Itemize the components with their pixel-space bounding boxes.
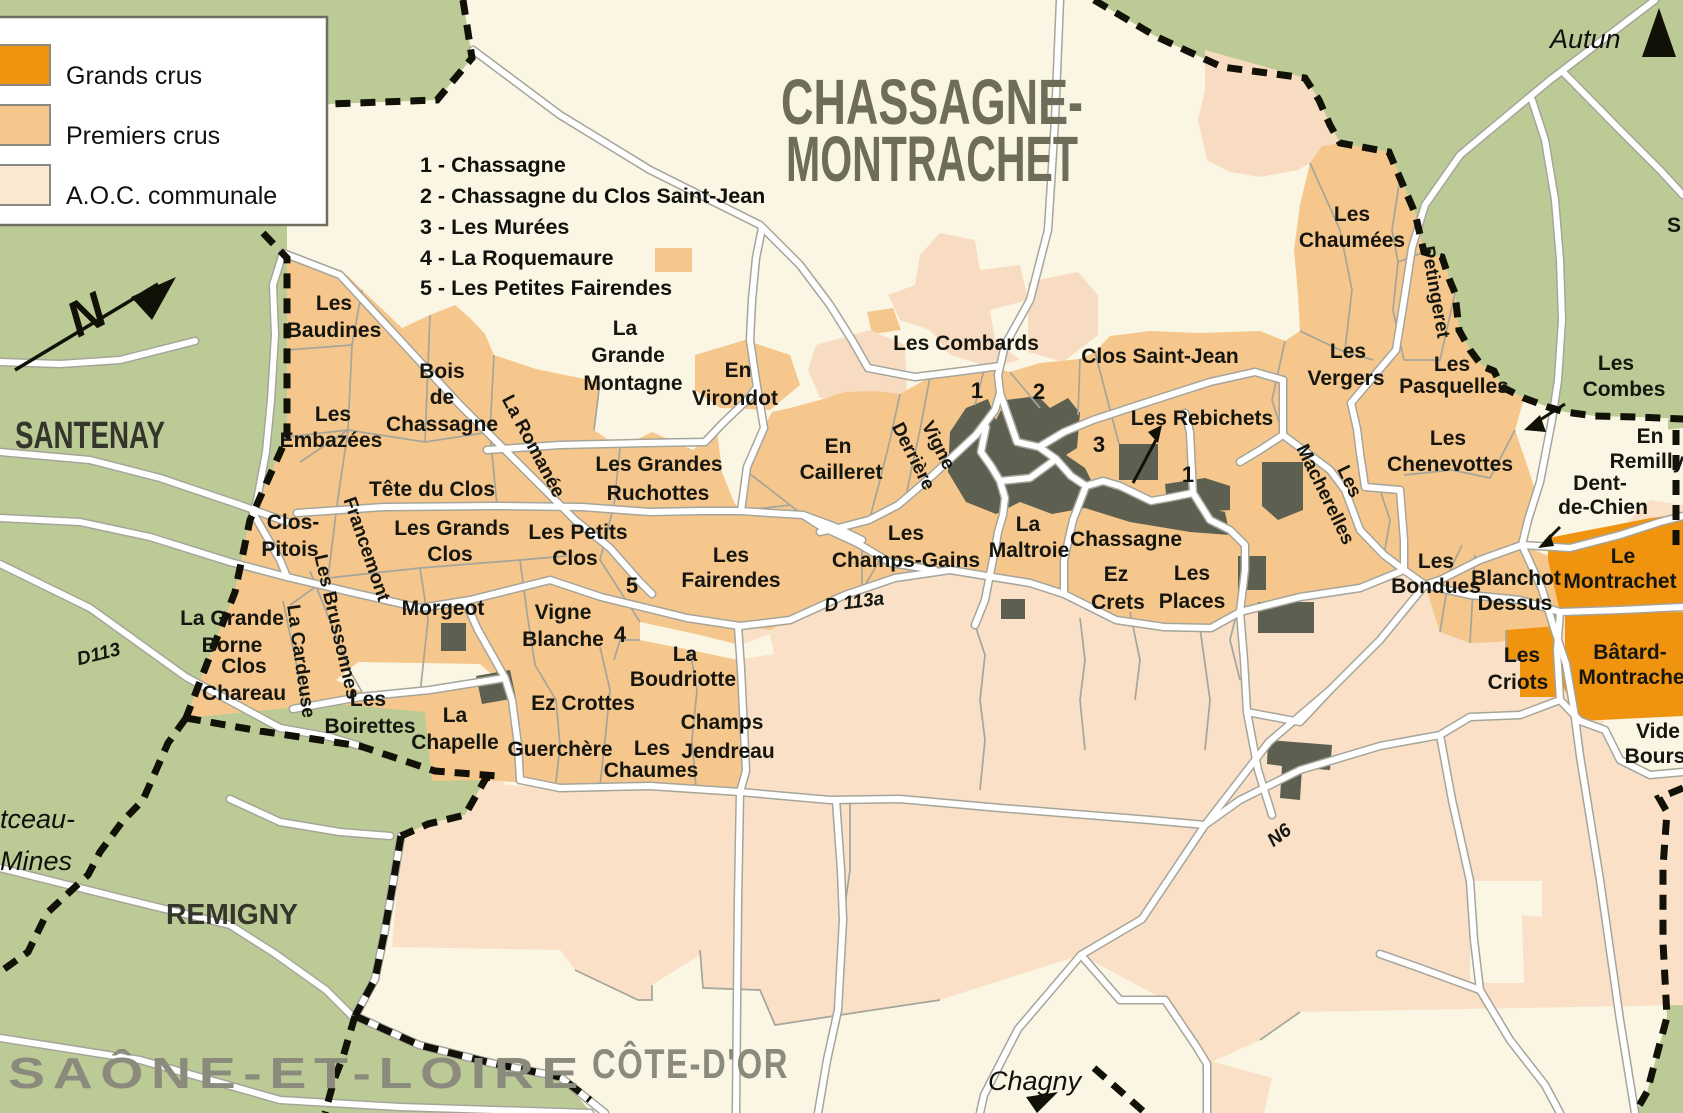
svg-text:Maltroie: Maltroie — [989, 539, 1070, 562]
svg-text:Fairendes: Fairendes — [681, 569, 780, 592]
svg-text:4: 4 — [614, 622, 627, 647]
svg-text:Vergers: Vergers — [1307, 367, 1384, 390]
svg-text:Borne: Borne — [202, 634, 263, 657]
svg-text:Embazées: Embazées — [280, 429, 383, 452]
svg-text:SANTENAY: SANTENAY — [15, 415, 165, 457]
svg-text:Premiers crus: Premiers crus — [66, 122, 220, 150]
svg-text:1: 1 — [1182, 462, 1194, 487]
svg-text:Les Petits: Les Petits — [528, 521, 627, 544]
svg-text:Clos Saint-Jean: Clos Saint-Jean — [1081, 345, 1239, 368]
svg-text:Autun: Autun — [1548, 24, 1621, 54]
svg-text:Champs: Champs — [681, 711, 764, 734]
svg-text:Les: Les — [316, 292, 352, 315]
svg-text:Chapelle: Chapelle — [411, 731, 499, 754]
svg-text:Chagny: Chagny — [988, 1066, 1083, 1096]
svg-text:Pasquelles: Pasquelles — [1399, 375, 1509, 398]
svg-text:Places: Places — [1159, 590, 1226, 613]
svg-text:Les: Les — [315, 403, 351, 426]
svg-text:Les: Les — [1174, 562, 1210, 585]
svg-text:Les Combards: Les Combards — [893, 332, 1039, 355]
svg-text:Grands crus: Grands crus — [66, 62, 202, 90]
svg-text:tceau-: tceau- — [0, 804, 75, 834]
svg-text:Chenevottes: Chenevottes — [1387, 453, 1513, 476]
svg-text:Les: Les — [1330, 340, 1366, 363]
svg-text:La: La — [673, 643, 698, 666]
svg-text:Le: Le — [1611, 545, 1636, 568]
svg-text:Chaumées: Chaumées — [1299, 229, 1405, 252]
svg-text:Les: Les — [1598, 352, 1634, 375]
svg-text:Les: Les — [888, 522, 924, 545]
svg-text:Crets: Crets — [1091, 591, 1145, 614]
svg-text:Criots: Criots — [1488, 671, 1549, 694]
svg-text:Les: Les — [350, 688, 386, 711]
svg-text:En: En — [825, 435, 852, 458]
svg-text:Les Grands: Les Grands — [394, 517, 510, 540]
svg-text:Les: Les — [713, 544, 749, 567]
svg-text:de: de — [430, 386, 455, 409]
svg-text:Les: Les — [1504, 644, 1540, 667]
svg-text:Les Grandes: Les Grandes — [595, 453, 722, 476]
svg-text:CÔTE-D'OR: CÔTE-D'OR — [592, 1039, 789, 1087]
svg-text:de-Chien: de-Chien — [1558, 496, 1648, 519]
svg-text:Boirettes: Boirettes — [324, 715, 415, 738]
svg-text:4 - La Roquemaure: 4 - La Roquemaure — [420, 246, 614, 270]
svg-text:Les: Les — [1430, 427, 1466, 450]
svg-text:Les: Les — [1418, 550, 1454, 573]
svg-text:La: La — [613, 317, 638, 340]
svg-text:Vigne: Vigne — [535, 601, 592, 624]
svg-text:Dessus: Dessus — [1478, 592, 1553, 615]
svg-text:Clos: Clos — [552, 547, 598, 570]
svg-text:Chassagne: Chassagne — [1070, 528, 1182, 551]
svg-text:SAÔNE-ET-LOIRE: SAÔNE-ET-LOIRE — [8, 1047, 586, 1098]
svg-text:Les: Les — [1434, 353, 1470, 376]
svg-text:2: 2 — [1033, 379, 1045, 404]
svg-text:1: 1 — [971, 378, 983, 403]
svg-text:Bours: Bours — [1625, 745, 1683, 768]
svg-text:5: 5 — [626, 573, 638, 598]
svg-text:Les Rebichets: Les Rebichets — [1131, 407, 1273, 430]
svg-text:Grande: Grande — [591, 344, 665, 367]
svg-text:Combes: Combes — [1583, 378, 1666, 401]
svg-text:Clos: Clos — [221, 655, 267, 678]
svg-text:Bâtard-: Bâtard- — [1593, 641, 1667, 664]
svg-text:5 - Les Petites Fairendes: 5 - Les Petites Fairendes — [420, 276, 672, 300]
svg-text:Bondues: Bondues — [1391, 575, 1481, 598]
svg-text:Cailleret: Cailleret — [800, 461, 883, 484]
svg-text:2 - Chassagne du Clos Saint-Je: 2 - Chassagne du Clos Saint-Jean — [420, 184, 765, 208]
svg-text:Montagne: Montagne — [583, 372, 682, 395]
svg-text:3 - Les Murées: 3 - Les Murées — [420, 215, 569, 239]
svg-text:Les: Les — [1334, 203, 1370, 226]
svg-text:Guerchère: Guerchère — [507, 738, 612, 761]
svg-text:3: 3 — [1093, 432, 1105, 457]
svg-text:Les: Les — [634, 737, 670, 760]
svg-text:Mines: Mines — [0, 846, 72, 876]
svg-text:En: En — [725, 359, 752, 382]
svg-text:Bois: Bois — [419, 360, 465, 383]
svg-text:S: S — [1667, 214, 1681, 237]
svg-text:Clos-: Clos- — [267, 511, 320, 534]
svg-text:Tête du Clos: Tête du Clos — [369, 478, 495, 501]
svg-text:Blanche: Blanche — [522, 628, 604, 651]
svg-text:Montrachet: Montrachet — [1578, 666, 1683, 689]
svg-text:Ez Crottes: Ez Crottes — [531, 692, 635, 715]
svg-text:Boudriotte: Boudriotte — [630, 668, 736, 691]
svg-text:La Grande: La Grande — [180, 607, 284, 630]
svg-text:Remilly: Remilly — [1610, 450, 1683, 473]
svg-text:Chassagne: Chassagne — [386, 413, 498, 436]
svg-text:Blanchot: Blanchot — [1471, 567, 1561, 590]
svg-text:Clos: Clos — [427, 543, 473, 566]
svg-text:Montrachet: Montrachet — [1563, 570, 1676, 593]
svg-text:Ruchottes: Ruchottes — [607, 482, 710, 505]
svg-text:MONTRACHET: MONTRACHET — [786, 123, 1078, 195]
svg-text:A.O.C. communale: A.O.C. communale — [66, 182, 277, 210]
svg-text:La: La — [443, 704, 468, 727]
svg-text:Baudines: Baudines — [287, 319, 382, 342]
svg-text:REMIGNY: REMIGNY — [166, 899, 298, 931]
svg-text:En: En — [1637, 425, 1664, 448]
svg-text:1 - Chassagne: 1 - Chassagne — [420, 153, 566, 177]
svg-text:Virondot: Virondot — [692, 387, 778, 410]
svg-text:Chareau: Chareau — [202, 682, 286, 705]
svg-text:Morgeot: Morgeot — [402, 597, 485, 620]
svg-text:Vide: Vide — [1636, 720, 1680, 743]
svg-text:Jendreau: Jendreau — [681, 740, 774, 763]
svg-text:Ez: Ez — [1104, 563, 1129, 586]
svg-text:Champs-Gains: Champs-Gains — [832, 549, 980, 572]
svg-text:Dent-: Dent- — [1573, 472, 1627, 495]
svg-text:La: La — [1016, 513, 1041, 536]
